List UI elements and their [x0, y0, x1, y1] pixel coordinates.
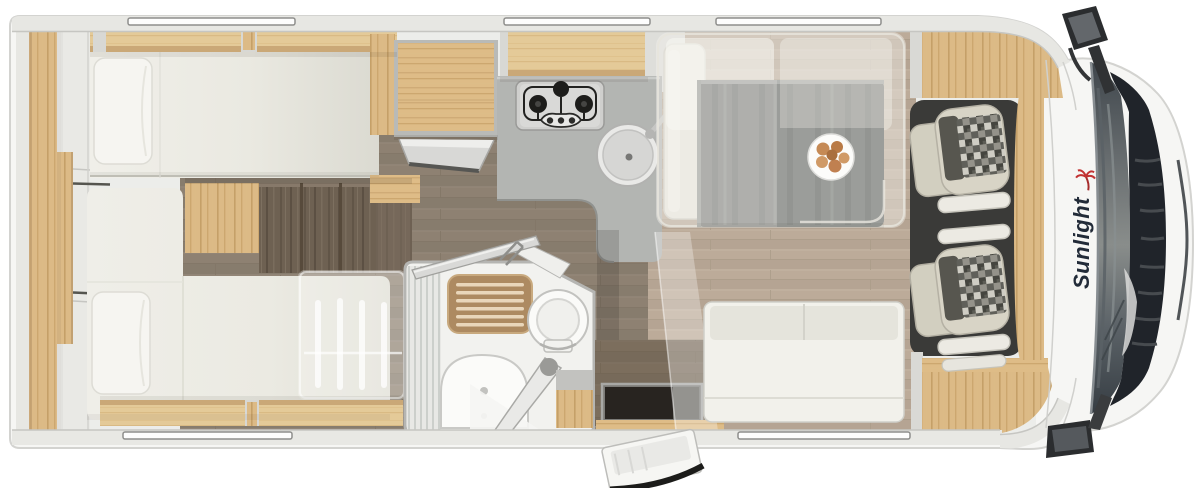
svg-text:Sunlight: Sunlight — [1069, 196, 1094, 289]
